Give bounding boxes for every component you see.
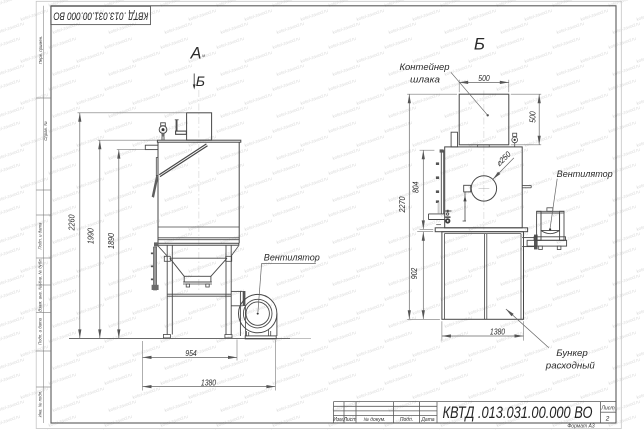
svg-text:Инв. № дубл.: Инв. № дубл. <box>37 258 42 284</box>
svg-text:А: А <box>190 45 202 63</box>
svg-text:Лист: Лист <box>343 417 357 423</box>
svg-text:Инв. № подл.: Инв. № подл. <box>37 391 42 418</box>
svg-text:Перв. примен.: Перв. примен. <box>38 36 43 65</box>
svg-text:1890: 1890 <box>107 233 116 249</box>
svg-text:Формат А3: Формат А3 <box>567 424 595 430</box>
svg-text:Подп. и дата: Подп. и дата <box>37 317 42 345</box>
svg-text:Вентилятор: Вентилятор <box>557 169 613 179</box>
svg-text:2260: 2260 <box>68 214 77 231</box>
svg-text:№ докум.: № докум. <box>363 417 385 423</box>
svg-text:2270: 2270 <box>398 196 407 213</box>
svg-text:1380: 1380 <box>490 327 506 336</box>
svg-text:Б: Б <box>196 74 205 90</box>
svg-text:500: 500 <box>528 111 537 123</box>
svg-text:Лист: Лист <box>600 406 615 412</box>
svg-text:Дата: Дата <box>420 417 434 423</box>
svg-text:500: 500 <box>478 74 490 83</box>
svg-text:Подп.: Подп. <box>400 417 413 423</box>
svg-text:954: 954 <box>185 349 197 358</box>
svg-text:КВТД .013.031.00.000 ВО: КВТД .013.031.00.000 ВО <box>53 9 148 21</box>
svg-text:1990: 1990 <box>87 228 96 244</box>
svg-text:804: 804 <box>411 181 420 193</box>
svg-text:Подп. и дата: Подп. и дата <box>37 222 42 250</box>
svg-text:Контейнер: Контейнер <box>400 62 450 72</box>
svg-text:расходный: расходный <box>545 361 595 371</box>
svg-text:КВТД .013.031.00.000 ВО: КВТД .013.031.00.000 ВО <box>443 403 593 422</box>
svg-text:1380: 1380 <box>201 379 217 388</box>
svg-text:Бункер: Бункер <box>556 348 588 358</box>
svg-text:2: 2 <box>605 416 610 423</box>
svg-text:Взам. инв. №: Взам. инв. № <box>37 285 42 312</box>
svg-text:Б: Б <box>474 34 485 53</box>
svg-text:902: 902 <box>410 267 419 279</box>
svg-text:шлака: шлака <box>410 74 440 84</box>
svg-text:Вентилятор: Вентилятор <box>264 253 320 263</box>
svg-text:Изм.: Изм. <box>333 417 344 423</box>
svg-text:Справ. №: Справ. № <box>43 121 48 141</box>
